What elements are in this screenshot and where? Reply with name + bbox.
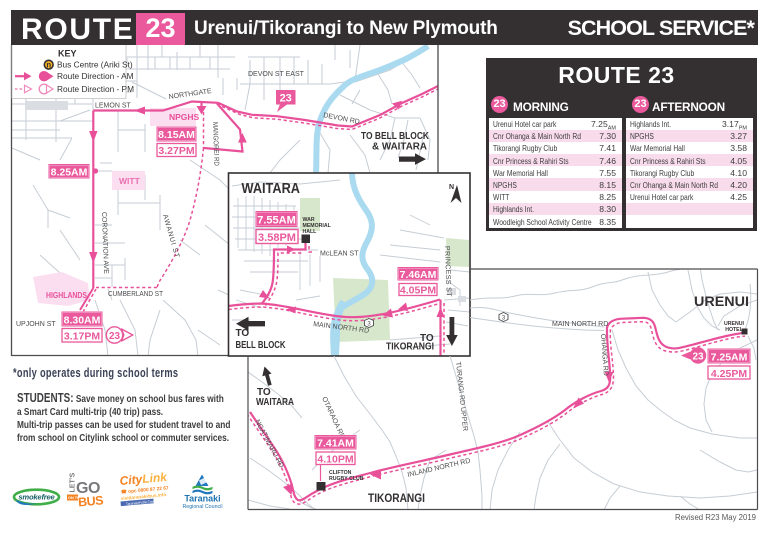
svg-text:CLIFTONRUGBY CLUB: CLIFTONRUGBY CLUB bbox=[329, 470, 364, 482]
svg-text:URENUIHOTEL: URENUIHOTEL bbox=[724, 321, 744, 333]
svg-text:DEVON ST EAST: DEVON ST EAST bbox=[248, 71, 305, 78]
svg-text:KEY: KEY bbox=[58, 49, 77, 59]
svg-text:n: n bbox=[46, 61, 51, 70]
svg-text:TO: TO bbox=[236, 328, 250, 339]
svg-text:MANGOREI RD: MANGOREI RD bbox=[211, 122, 220, 166]
svg-text:7.25AM: 7.25AM bbox=[711, 352, 748, 364]
svg-text:8.25AM: 8.25AM bbox=[51, 167, 88, 179]
svg-text:WAITARA: WAITARA bbox=[242, 181, 301, 197]
svg-text:MAIN NORTH RD: MAIN NORTH RD bbox=[552, 321, 608, 328]
svg-text:BELL BLOCK: BELL BLOCK bbox=[236, 339, 286, 351]
svg-text:Bus Centre (Ariki St): Bus Centre (Ariki St) bbox=[57, 60, 133, 70]
svg-text:N: N bbox=[449, 184, 454, 191]
svg-text:& WAITARA: & WAITARA bbox=[372, 141, 427, 153]
svg-text:4.05PM: 4.05PM bbox=[400, 285, 436, 297]
svg-text:7.46AM: 7.46AM bbox=[400, 269, 437, 281]
svg-text:TIKORANGI: TIKORANGI bbox=[386, 341, 434, 353]
svg-text:4.10PM: 4.10PM bbox=[317, 454, 353, 466]
svg-text:3.58PM: 3.58PM bbox=[258, 232, 296, 244]
svg-text:CityLink: CityLink bbox=[119, 470, 169, 488]
svg-text:3.17PM: 3.17PM bbox=[64, 331, 100, 343]
svg-text:CUMBERLAND ST: CUMBERLAND ST bbox=[108, 291, 164, 298]
svg-text:8.30AM: 8.30AM bbox=[64, 315, 101, 327]
svg-text:7.41AM: 7.41AM bbox=[317, 438, 354, 450]
svg-text:INLAND NORTH RD: INLAND NORTH RD bbox=[407, 458, 471, 479]
svg-text:UPJOHN ST: UPJOHN ST bbox=[16, 321, 56, 328]
svg-text:3.27PM: 3.27PM bbox=[158, 145, 194, 157]
svg-text:Regional Council: Regional Council bbox=[182, 504, 222, 510]
svg-text:TIKORANGI: TIKORANGI bbox=[368, 491, 425, 505]
svg-text:8.15AM: 8.15AM bbox=[158, 129, 195, 141]
svg-text:BUS: BUS bbox=[78, 493, 104, 509]
svg-text:Taranaki: Taranaki bbox=[184, 494, 220, 504]
svg-text:LEMON ST: LEMON ST bbox=[95, 103, 132, 110]
svg-text:NGATIMARU RD: NGATIMARU RD bbox=[253, 419, 284, 470]
svg-text:HIGHLANDS: HIGHLANDS bbox=[46, 291, 88, 300]
svg-text:NORTHGATE: NORTHGATE bbox=[168, 88, 212, 101]
svg-text:OTARAOA RD: OTARAOA RD bbox=[320, 396, 346, 440]
svg-text:23: 23 bbox=[692, 352, 704, 363]
svg-text:NPGHS: NPGHS bbox=[169, 112, 200, 122]
svg-text:Route Direction - AM: Route Direction - AM bbox=[57, 71, 134, 81]
svg-text:Route Direction - PM: Route Direction - PM bbox=[57, 84, 134, 94]
svg-text:TURANGI RD UPPER: TURANGI RD UPPER bbox=[454, 361, 468, 431]
svg-text:AWANUI ST: AWANUI ST bbox=[161, 214, 180, 260]
svg-text:WITT: WITT bbox=[119, 176, 141, 186]
svg-text:smokefree: smokefree bbox=[18, 493, 55, 502]
svg-text:WAITARA: WAITARA bbox=[256, 396, 294, 408]
svg-text:URENUI: URENUI bbox=[694, 294, 749, 309]
svg-text:7.55AM: 7.55AM bbox=[257, 215, 296, 227]
svg-text:4.25PM: 4.25PM bbox=[711, 368, 747, 380]
svg-text:23: 23 bbox=[109, 331, 121, 342]
svg-text:McLEAN ST: McLEAN ST bbox=[320, 251, 359, 258]
svg-text:23: 23 bbox=[280, 93, 292, 105]
